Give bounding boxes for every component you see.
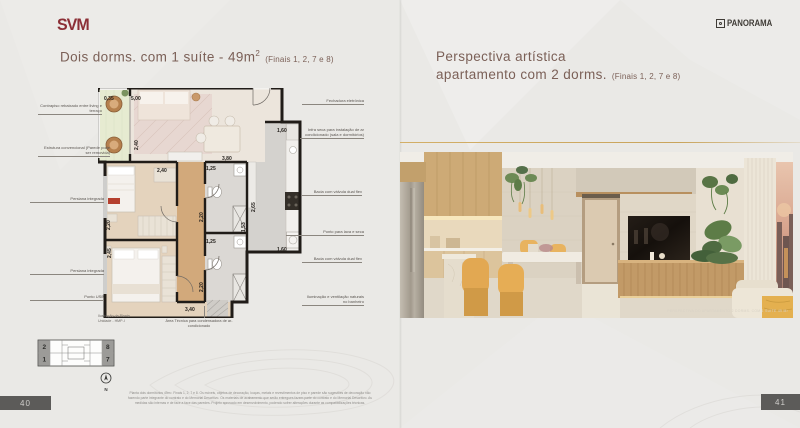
page-number-right: 41	[761, 394, 800, 410]
dimension-label: 1,60	[277, 128, 287, 134]
plan-caption-line2: Unidade - HMP-I	[98, 319, 130, 324]
page-title-right: Perspectiva artística apartamento com 2 …	[436, 48, 680, 83]
dimension-label: 1,53	[241, 222, 247, 232]
title-right-finais: (Finais 1, 2, 7 e 8)	[612, 72, 680, 81]
title-finais: (Finais 1, 2, 7 e 8)	[265, 55, 333, 64]
dimension-label: 3,80	[222, 156, 232, 162]
callout-lava-seca: Ponto para lava e seca	[286, 229, 364, 236]
keyplan-svg: 2 1 8 7 N	[36, 336, 116, 394]
callout-contrapiso: Contrapiso rebaixado entre living e terr…	[38, 103, 102, 115]
svm-logo: SVM	[57, 17, 89, 36]
dimension-label: 2,20	[199, 282, 205, 292]
panorama-logo-text: PANORAMA	[727, 18, 772, 29]
dimension-label: 0,35	[104, 96, 114, 102]
callout-infra-seca: Infra seca para instalação de ar condici…	[300, 127, 364, 139]
dimension-label: 3,40	[185, 307, 195, 313]
keyplan-unit-7: 7	[106, 357, 110, 364]
render-caption: PERSPECTIVA DO APARTAMENTO 2 DORMS. COM …	[667, 309, 788, 313]
ac-area-note: Área Técnica para condensadora de ar-con…	[158, 319, 240, 329]
dimension-label: 2,20	[106, 220, 112, 230]
dimension-label: 1,25	[206, 166, 216, 172]
apartment-render: PERSPECTIVA DO APARTAMENTO 2 DORMS. COM …	[400, 152, 793, 318]
callout-estrutura: Estrutura convencional (Parede pode ser …	[38, 145, 110, 157]
gold-accent-line	[400, 142, 800, 143]
dimension-label: 2,40	[157, 168, 167, 174]
dimension-label: 2,65	[251, 202, 257, 212]
apartment-render-svg: PERSPECTIVA DO APARTAMENTO 2 DORMS. COM …	[400, 152, 793, 318]
callout-iluminacao: Iluminação e ventilação naturais no banh…	[302, 294, 364, 306]
callout-fechadura: Fechadura eletrônica	[302, 98, 364, 105]
floor-plan: 0,35 5,00 2,40 2,40 3,80 1,25 2,20 1,25 …	[98, 88, 302, 318]
title-right-line1: Perspectiva artística	[436, 48, 680, 66]
dimension-label: 2,45	[107, 248, 113, 258]
floor-plan-svg: 0,35 5,00 2,40 2,40 3,80 1,25 2,20 1,25 …	[98, 88, 302, 318]
dimension-label: 1,60	[277, 247, 287, 253]
hallway-door	[582, 194, 620, 284]
callout-persiana-2: Persiana integrada	[30, 268, 104, 275]
brochure-spread: SVM Dois dorms. com 1 suíte - 49m2(Finai…	[0, 0, 800, 428]
dimension-label: 2,20	[199, 212, 205, 222]
title-right-line2-text: apartamento com 2 dorms.	[436, 67, 607, 82]
callout-bacia-1: Bacia com válvula dual flex	[302, 189, 362, 196]
title-superscript: 2	[255, 49, 260, 58]
compass-north-label: N	[104, 387, 107, 392]
page-title-left: Dois dorms. com 1 suíte - 49m2(Finais 1,…	[60, 49, 334, 65]
callout-ponto-usb: Ponto USB	[30, 294, 104, 301]
dimension-label: 2,40	[134, 140, 140, 150]
fridge	[400, 182, 424, 318]
dimension-label: 5,00	[131, 96, 141, 102]
keyplan: 2 1 8 7 N	[36, 336, 116, 394]
keyplan-unit-2: 2	[42, 344, 46, 351]
panorama-logo-icon	[716, 19, 725, 28]
panorama-logo-dot	[719, 22, 722, 25]
disclaimer-text: Planta dois dormitórios 49m². Finais 1, …	[128, 391, 372, 406]
title-right-line2: apartamento com 2 dorms.(Finais 1, 2, 7 …	[436, 66, 680, 84]
compass: N	[101, 373, 111, 392]
ac-note-leader-line	[204, 306, 205, 318]
living-room	[134, 90, 212, 161]
callout-bacia-2: Bacia com válvula dual flex	[302, 256, 362, 263]
dimension-label: 1,25	[206, 239, 216, 245]
plan-caption: Ilustração da Planta Unidade - HMP-I	[98, 314, 130, 325]
panorama-logo: PANORAMA	[716, 18, 782, 29]
keyplan-unit-1: 1	[42, 357, 46, 364]
callout-persiana-1: Persiana integrada	[30, 196, 104, 203]
keyplan-unit-8: 8	[106, 344, 110, 351]
title-text: Dois dorms. com 1 suíte - 49m	[60, 50, 255, 65]
page-number-left: 40	[0, 396, 51, 410]
